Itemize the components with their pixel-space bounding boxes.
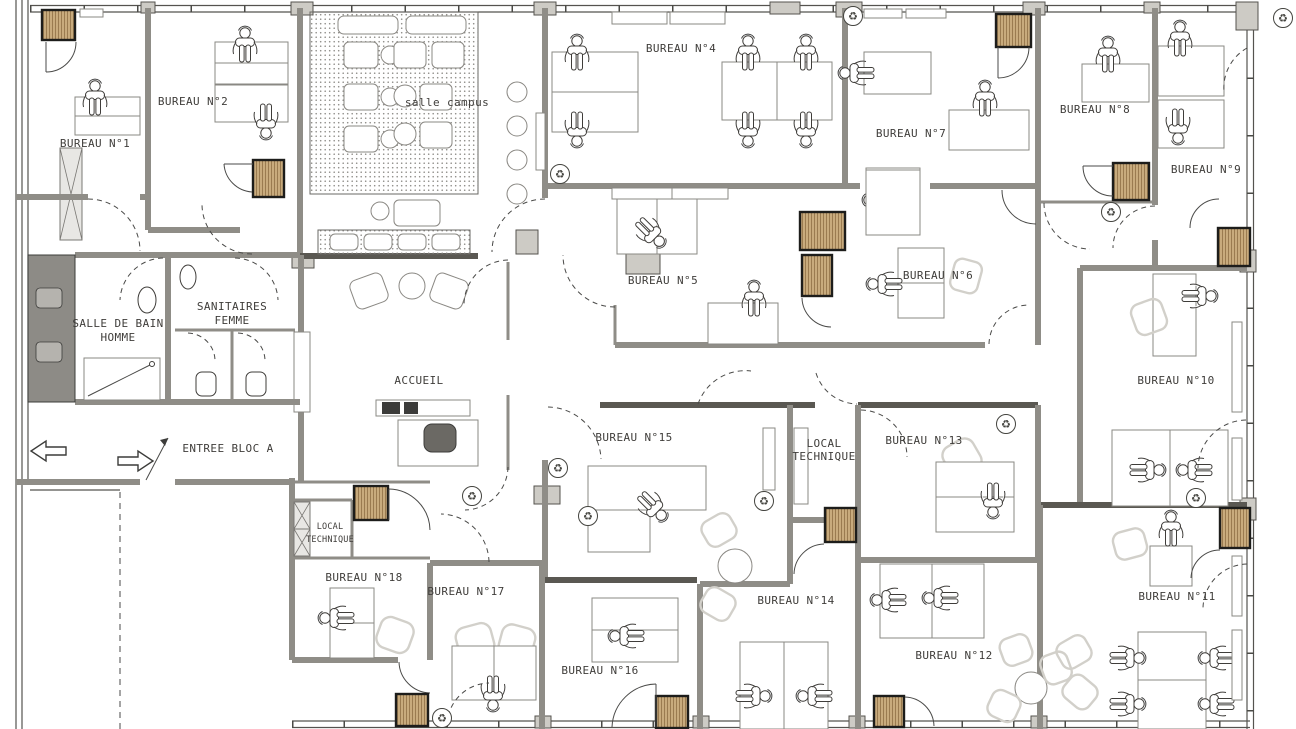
- wood-cabinet: [825, 508, 856, 542]
- wood-cabinet: [354, 486, 388, 520]
- room-label-sanitaires: SANITAIRES: [197, 300, 267, 313]
- room-label-bureau-7: BUREAU N°7: [876, 127, 946, 140]
- room-sanitaires-block: SALLE DE BAIN HOMME SANITAIRES FEMME: [28, 255, 300, 402]
- wood-cabinet: [1218, 228, 1250, 266]
- room-bureau-14: BUREAU N°14: [697, 508, 856, 729]
- room-bureau-15: BUREAU N°15: [548, 407, 775, 552]
- wood-cabinet: [800, 212, 845, 250]
- wood-cabinet: [1113, 163, 1149, 200]
- room-label-bureau-15: BUREAU N°15: [595, 431, 672, 444]
- room-label-bureau-1: BUREAU N°1: [60, 137, 130, 150]
- room-label-bureau-16: BUREAU N°16: [561, 664, 638, 677]
- room-label-bureau-6: BUREAU N°6: [903, 269, 973, 282]
- room-label-bureau-8: BUREAU N°8: [1060, 103, 1130, 116]
- recycle-icon: [755, 492, 774, 511]
- recycle-icon: [1187, 489, 1206, 508]
- enter-arrow-icon: [118, 451, 153, 471]
- room-bureau-18: LOCAL TECHNIQUE BUREAU N°18: [294, 486, 430, 726]
- wood-cabinet: [253, 160, 284, 197]
- room-label-bureau-12: BUREAU N°12: [915, 649, 992, 662]
- room-label-bureau-9: BUREAU N°9: [1171, 163, 1241, 176]
- room-bureau-13: BUREAU N°13: [861, 410, 1016, 532]
- room-label-bureau-4: BUREAU N°4: [646, 42, 716, 55]
- room-bureau-17: BUREAU N°17: [427, 487, 537, 728]
- room-label-bureau-5: BUREAU N°5: [628, 274, 698, 287]
- room-label-local-technique-1: LOCAL: [806, 437, 841, 450]
- room-label-salle-de-bain-2: HOMME: [100, 331, 135, 344]
- room-label-accueil: ACCUEIL: [394, 374, 443, 387]
- wood-cabinet: [42, 10, 75, 40]
- recycle-icon: [433, 709, 452, 728]
- room-label-local-technique-2: LOCAL: [317, 522, 344, 532]
- room-bureau-5: BUREAU N°5: [563, 188, 845, 344]
- wood-cabinet: [802, 255, 832, 296]
- recycle-icon: [844, 7, 863, 26]
- room-bureau-1: BUREAU N°1: [42, 9, 140, 150]
- room-label-salle-de-bain: SALLE DE BAIN: [72, 317, 163, 330]
- room-bureau-9: BUREAU N°9: [1113, 9, 1293, 267]
- recycle-icon: [551, 165, 570, 184]
- room-bureau-6: BUREAU N°6: [866, 170, 1036, 344]
- room-bureau-4: BUREAU N°4: [551, 12, 833, 184]
- room-bureau-8: BUREAU N°8: [1044, 36, 1149, 249]
- recycle-icon: [1274, 9, 1293, 28]
- wood-cabinet: [656, 696, 688, 728]
- room-label-bureau-11: BUREAU N°11: [1138, 590, 1215, 603]
- room-bureau-2: BUREAU N°2: [158, 26, 288, 197]
- room-label-sanitaires-2: FEMME: [214, 314, 249, 327]
- exit-arrow-icon: [31, 441, 66, 461]
- room-label-bureau-14: BUREAU N°14: [757, 594, 834, 607]
- wood-cabinet: [874, 696, 904, 727]
- room-local-technique-1: LOCAL TECHNIQUE: [792, 373, 857, 504]
- room-bureau-11: BUREAU N°11: [1053, 508, 1250, 729]
- room-accueil: ACCUEIL: [348, 260, 508, 510]
- room-bureau-12: BUREAU N°12: [870, 564, 1074, 727]
- recycle-icon: [997, 415, 1016, 434]
- floor-plan: ♻: [0, 0, 1296, 729]
- room-label-salle-campus: salle campus: [405, 96, 489, 109]
- room-label-local-technique-2b: TECHNIQUE: [306, 535, 354, 545]
- room-salle-campus: salle campus: [310, 12, 545, 254]
- recycle-icon: [579, 507, 598, 526]
- room-label-entree: ENTREE BLOC A: [182, 442, 273, 455]
- room-label-bureau-18: BUREAU N°18: [325, 571, 402, 584]
- room-bureau-16: BUREAU N°16: [561, 598, 688, 728]
- wood-cabinet: [396, 694, 428, 726]
- room-label-bureau-17: BUREAU N°17: [427, 585, 504, 598]
- recycle-icon: [549, 459, 568, 478]
- wood-cabinet: [996, 14, 1031, 47]
- wood-cabinet: [1220, 508, 1250, 548]
- corridor-doors: [698, 371, 751, 404]
- recycle-icon: [463, 487, 482, 506]
- room-bureau-10: BUREAU N°10: [1112, 274, 1246, 508]
- room-label-bureau-10: BUREAU N°10: [1137, 374, 1214, 387]
- room-label-bureau-2: BUREAU N°2: [158, 95, 228, 108]
- room-label-local-technique-1b: TECHNIQUE: [792, 450, 855, 463]
- room-label-bureau-13: BUREAU N°13: [885, 434, 962, 447]
- floor-plan-drawing: ♻: [0, 0, 1296, 729]
- recycle-icon: [1102, 203, 1121, 222]
